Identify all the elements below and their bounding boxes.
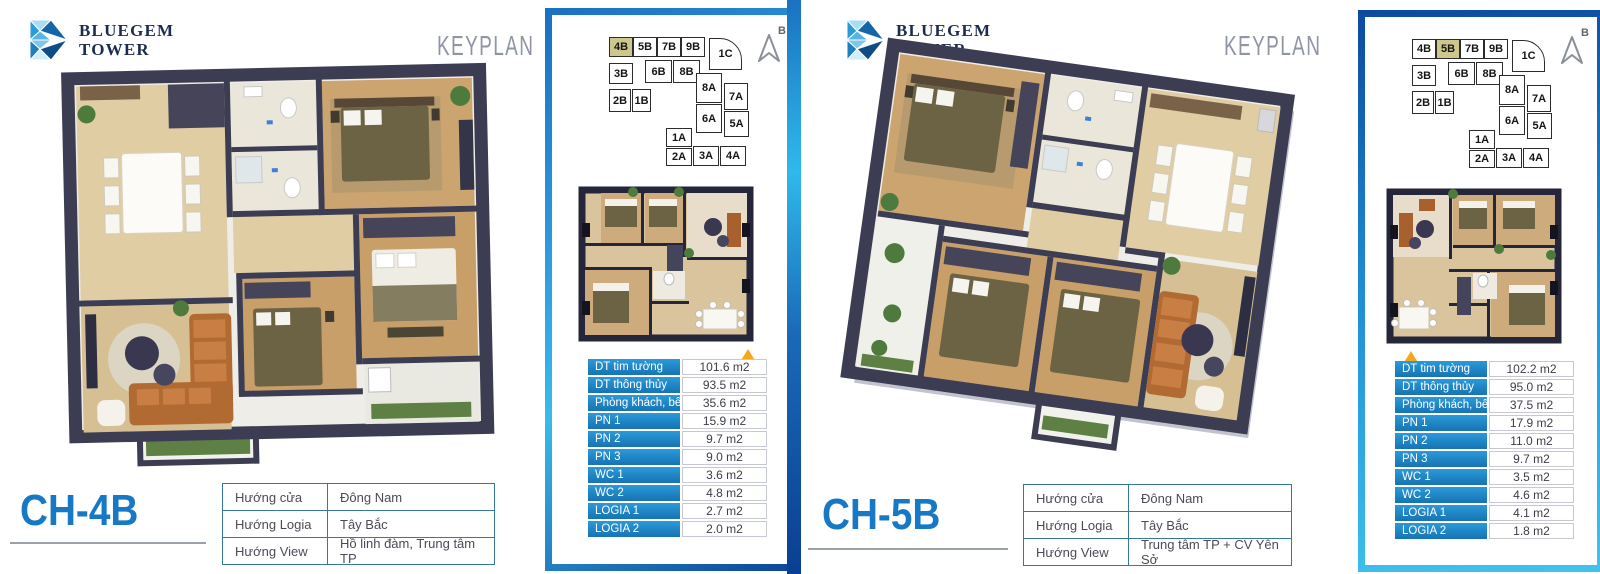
area-row-value: 95.0 m2 — [1489, 379, 1574, 395]
keyplan-unit-5a: 5A — [724, 111, 749, 137]
keyplan-unit-7a: 7A — [1527, 85, 1551, 112]
area-row-value: 102.2 m2 — [1489, 361, 1574, 377]
keyplan-unit-2b: 2B — [609, 89, 631, 112]
area-row-label: PN 2 — [588, 431, 680, 447]
north-compass: B — [1557, 29, 1589, 75]
area-row: Phòng khách, bếp 37.5 m2 — [1395, 397, 1574, 413]
title-underline — [10, 542, 206, 544]
area-row-label: WC 2 — [588, 485, 680, 501]
direction-label: Hướng Logia — [223, 511, 328, 537]
direction-value: Trung tâm TP + CV Yên Sở — [1129, 539, 1291, 565]
area-row-label: LOGIA 1 — [1395, 505, 1487, 521]
keyplan-heading: KEYPLAN — [437, 30, 534, 62]
keyplan-unit-7a: 7A — [724, 83, 748, 110]
area-row: PN 3 9.7 m2 — [1395, 451, 1574, 467]
keyplan-unit-3b: 3B — [609, 63, 633, 84]
area-row: PN 1 17.9 m2 — [1395, 415, 1574, 431]
area-row-value: 17.9 m2 — [1489, 415, 1574, 431]
area-row: PN 3 9.0 m2 — [588, 449, 767, 465]
area-row-label: LOGIA 2 — [588, 521, 680, 537]
keyplan-unit-7b: 7B — [1460, 39, 1484, 59]
area-row: LOGIA 1 4.1 m2 — [1395, 505, 1574, 521]
area-row-value: 9.0 m2 — [682, 449, 767, 465]
keyplan-unit-3b: 3B — [1412, 65, 1436, 86]
area-row: DT tim tường 102.2 m2 — [1395, 361, 1574, 377]
direction-row: Hướng cửa Đông Nam — [1024, 485, 1291, 512]
logo-line1: BLUEGEM — [896, 21, 991, 40]
area-row-value: 4.1 m2 — [1489, 505, 1574, 521]
keyplan-unit-grid: 4B5B7B9B1C3B6B8B2B1B8A7A6A5A1A2A3A4A — [1407, 25, 1557, 175]
area-row-label: PN 1 — [588, 413, 680, 429]
direction-label: Hướng cửa — [1024, 485, 1129, 511]
keyplan-unit-3a: 3A — [1496, 148, 1522, 168]
floor-plan-3d-ch4b — [38, 60, 528, 474]
keyplan-unit-5a: 5A — [1527, 113, 1552, 139]
area-row: PN 2 9.7 m2 — [588, 431, 767, 447]
direction-label: Hướng View — [223, 538, 328, 564]
area-row-label: PN 2 — [1395, 433, 1487, 449]
keyplan-unit-1c: 1C — [1512, 40, 1545, 72]
area-row-label: DT thông thủy — [1395, 379, 1487, 395]
area-row-value: 93.5 m2 — [682, 377, 767, 393]
unit-code-title: CH-5B — [822, 490, 940, 540]
keyplan-unit-8a: 8A — [696, 73, 722, 103]
direction-table: Hướng cửa Đông Nam Hướng Logia Tây Bắc H… — [222, 483, 495, 565]
area-row-value: 3.6 m2 — [682, 467, 767, 483]
mini-floor-plan — [575, 183, 757, 345]
area-row-label: PN 3 — [1395, 451, 1487, 467]
area-row: WC 2 4.8 m2 — [588, 485, 767, 501]
brochure-page: BLUEGEM TOWER KEYPLAN — [0, 0, 1600, 574]
area-row-value: 1.8 m2 — [1489, 523, 1574, 539]
logo-line2: TOWER — [79, 40, 150, 59]
keyplan-unit-6a: 6A — [696, 104, 722, 133]
direction-value: Tây Bắc — [328, 511, 494, 537]
direction-value: Tây Bắc — [1129, 512, 1291, 538]
keyplan-unit-6b: 6B — [1448, 62, 1475, 85]
keyplan-unit-1b: 1B — [1435, 91, 1454, 114]
logo-text: BLUEGEM TOWER — [79, 21, 174, 59]
title-underline — [808, 548, 1008, 550]
area-row: PN 1 15.9 m2 — [588, 413, 767, 429]
area-row-label: Phòng khách, bếp — [1395, 397, 1487, 413]
area-row-value: 4.6 m2 — [1489, 487, 1574, 503]
area-table: DT tim tường 102.2 m2 DT thông thủy 95.0… — [1395, 361, 1574, 539]
direction-row: Hướng cửa Đông Nam — [223, 484, 494, 511]
direction-value: Đông Nam — [1129, 485, 1291, 511]
keyplan-unit-9b: 9B — [1484, 39, 1508, 59]
area-row-label: DT thông thủy — [588, 377, 680, 393]
area-row: Phòng khách, bếp 35.6 m2 — [588, 395, 767, 411]
keyplan-unit-7b: 7B — [657, 37, 681, 57]
keyplan-unit-1a: 1A — [666, 128, 692, 147]
area-row-value: 2.0 m2 — [682, 521, 767, 537]
area-row: WC 2 4.6 m2 — [1395, 487, 1574, 503]
compass-label: B — [778, 25, 786, 37]
keyplan-unit-1c: 1C — [709, 38, 742, 70]
keyplan-unit-4b: 4B — [1412, 39, 1436, 59]
keyplan-unit-8a: 8A — [1499, 75, 1525, 105]
direction-label: Hướng Logia — [1024, 512, 1129, 538]
keyplan-unit-grid: 4B5B7B9B1C3B6B8B2B1B8A7A6A5A1A2A3A4A — [604, 23, 754, 173]
area-row-label: LOGIA 1 — [588, 503, 680, 519]
area-row-label: DT tim tường — [1395, 361, 1487, 377]
logo-line1: BLUEGEM — [79, 21, 174, 40]
keyplan-unit-6b: 6B — [645, 60, 672, 83]
area-row: WC 1 3.6 m2 — [588, 467, 767, 483]
keyplan-unit-9b: 9B — [681, 37, 705, 57]
keyplan-unit-4b: 4B — [609, 37, 633, 57]
direction-row: Hướng View Hồ linh đàm, Trung tâm TP — [223, 538, 494, 564]
area-table: DT tim tường 101.6 m2 DT thông thủy 93.5… — [588, 359, 767, 537]
direction-label: Hướng View — [1024, 539, 1129, 565]
keyplan-unit-2b: 2B — [1412, 91, 1434, 114]
area-row-label: WC 1 — [1395, 469, 1487, 485]
north-compass: B — [754, 27, 786, 73]
direction-label: Hướng cửa — [223, 484, 328, 510]
direction-value: Đông Nam — [328, 484, 494, 510]
keyplan-unit-2a: 2A — [1469, 150, 1495, 168]
keyplan-unit-2a: 2A — [666, 148, 692, 166]
direction-table: Hướng cửa Đông Nam Hướng Logia Tây Bắc H… — [1023, 484, 1292, 566]
keyplan-unit-5b: 5B — [1436, 39, 1460, 59]
direction-row: Hướng Logia Tây Bắc — [1024, 512, 1291, 539]
keyplan-unit-4a: 4A — [720, 146, 746, 166]
area-row-label: LOGIA 2 — [1395, 523, 1487, 539]
keyplan-unit-1a: 1A — [1469, 130, 1495, 149]
area-row: PN 2 11.0 m2 — [1395, 433, 1574, 449]
keyplan-unit-4a: 4A — [1523, 148, 1549, 168]
area-row: LOGIA 2 2.0 m2 — [588, 521, 767, 537]
area-row-value: 9.7 m2 — [1489, 451, 1574, 467]
gem-logo-icon — [28, 16, 70, 64]
area-row: WC 1 3.5 m2 — [1395, 469, 1574, 485]
area-row-value: 11.0 m2 — [1489, 433, 1574, 449]
area-row-label: WC 2 — [1395, 487, 1487, 503]
area-row-label: DT tim tường — [588, 359, 680, 375]
keyplan-unit-1b: 1B — [632, 89, 651, 112]
compass-label: B — [1581, 27, 1589, 39]
area-row: LOGIA 1 2.7 m2 — [588, 503, 767, 519]
area-row-value: 9.7 m2 — [682, 431, 767, 447]
keyplan-panel: 4B5B7B9B1C3B6B8B2B1B8A7A6A5A1A2A3A4A B — [545, 8, 801, 571]
section-divider-bar — [787, 0, 801, 574]
area-row-value: 3.5 m2 — [1489, 469, 1574, 485]
area-row: DT tim tường 101.6 m2 — [588, 359, 767, 375]
keyplan-unit-3a: 3A — [693, 146, 719, 166]
area-row-label: WC 1 — [588, 467, 680, 483]
area-row-label: PN 1 — [1395, 415, 1487, 431]
bluegem-logo: BLUEGEM TOWER — [28, 16, 174, 64]
area-row-value: 35.6 m2 — [682, 395, 767, 411]
area-row: DT thông thủy 95.0 m2 — [1395, 379, 1574, 395]
keyplan-unit-5b: 5B — [633, 37, 657, 57]
area-row-value: 4.8 m2 — [682, 485, 767, 501]
keyplan-panel-inner: 4B5B7B9B1C3B6B8B2B1B8A7A6A5A1A2A3A4A B — [1365, 17, 1597, 565]
keyplan-panel: 4B5B7B9B1C3B6B8B2B1B8A7A6A5A1A2A3A4A B — [1358, 10, 1600, 572]
area-row: DT thông thủy 93.5 m2 — [588, 377, 767, 393]
area-row: LOGIA 2 1.8 m2 — [1395, 523, 1574, 539]
direction-row: Hướng View Trung tâm TP + CV Yên Sở — [1024, 539, 1291, 565]
area-row-label: Phòng khách, bếp — [588, 395, 680, 411]
area-row-value: 2.7 m2 — [682, 503, 767, 519]
unit-code-title: CH-4B — [20, 486, 138, 536]
area-row-value: 37.5 m2 — [1489, 397, 1574, 413]
area-row-value: 15.9 m2 — [682, 413, 767, 429]
floor-plan-3d-ch5b — [808, 45, 1323, 490]
direction-value: Hồ linh đàm, Trung tâm TP — [328, 538, 494, 564]
mini-floor-plan — [1383, 185, 1565, 347]
keyplan-panel-inner: 4B5B7B9B1C3B6B8B2B1B8A7A6A5A1A2A3A4A B — [552, 15, 794, 564]
direction-row: Hướng Logia Tây Bắc — [223, 511, 494, 538]
area-row-label: PN 3 — [588, 449, 680, 465]
keyplan-unit-6a: 6A — [1499, 106, 1525, 135]
area-row-value: 101.6 m2 — [682, 359, 767, 375]
